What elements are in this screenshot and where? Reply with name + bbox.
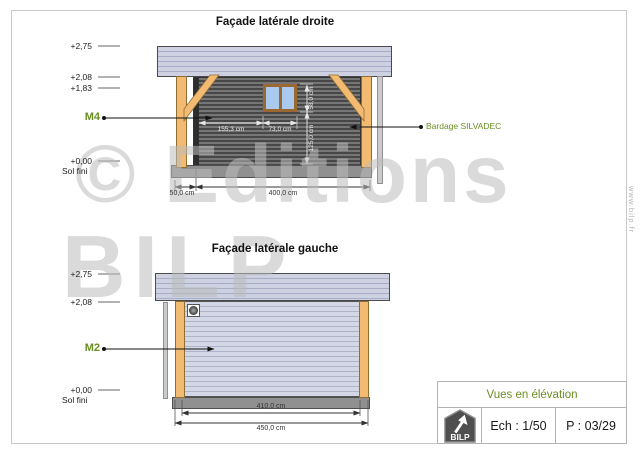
- dim-wall-length: 400,0 cm: [248, 190, 318, 197]
- scale-value: Ech : 1/50: [482, 408, 556, 443]
- window-pane-right: [282, 87, 295, 109]
- left-facade-title: Façade latérale gauche: [130, 243, 420, 255]
- left-view-right-post: [359, 301, 369, 398]
- dim-overall-length: 450,0 cm: [226, 425, 316, 432]
- bardage-silvadec-label: Bardage SILVADEC: [426, 121, 501, 131]
- level-208-label: +2,08: [48, 72, 92, 82]
- level-275-label-2: +2,75: [48, 269, 92, 279]
- title-block-title: Vues en élévation: [438, 382, 626, 408]
- dim-post-offset: 50,0 cm: [156, 190, 208, 197]
- marker-m2-label: M2: [60, 342, 100, 354]
- drawing-sheet: Façade latérale droite +2,75 +2,08 +1,83…: [0, 0, 640, 452]
- right-facade-title: Façade latérale droite: [130, 16, 420, 28]
- left-cladding-wall: [184, 301, 360, 397]
- website-url: www.bilp.fr: [627, 186, 636, 233]
- wall-corner-trim: [194, 78, 199, 165]
- left-roof-panel: [155, 273, 390, 301]
- left-downpipe: [163, 302, 168, 399]
- title-block: Vues en élévation BILP Ech : 1/50 P : 03…: [437, 381, 627, 444]
- dim-window-height: 58,0 cm: [308, 83, 318, 113]
- sol-fini-label: Sol fini: [48, 166, 92, 176]
- right-view-left-post: [176, 76, 187, 168]
- right-fascia-board: [377, 76, 383, 184]
- bilp-logo-text: BILP: [450, 432, 470, 442]
- page-number: P : 03/29: [556, 408, 626, 443]
- right-base-slab: [171, 165, 372, 178]
- vent-icon: [187, 304, 200, 317]
- sol-fini-label-2: Sol fini: [48, 395, 92, 405]
- right-roof-panel: [157, 46, 392, 77]
- level-000-label: +0,00: [48, 156, 92, 166]
- dim-window-offset: 155,3 cm: [199, 126, 263, 133]
- bilp-logo-icon: BILP: [444, 409, 476, 443]
- level-208-label-2: +2,08: [48, 297, 92, 307]
- right-view-right-post: [361, 76, 372, 168]
- bilp-logo: BILP: [438, 408, 482, 443]
- dim-sill-height: 125,0 cm: [308, 121, 318, 155]
- marker-m4-label: M4: [60, 111, 100, 123]
- dim-window-width: 73,0 cm: [263, 126, 297, 133]
- window-pane-left: [266, 87, 279, 109]
- dim-inner-length: 410,0 cm: [226, 403, 316, 410]
- level-275-label: +2,75: [48, 41, 92, 51]
- level-183-label: +1,83: [48, 83, 92, 93]
- level-000-label-2: +0,00: [48, 385, 92, 395]
- left-view-left-post: [175, 301, 185, 398]
- window: [263, 84, 297, 112]
